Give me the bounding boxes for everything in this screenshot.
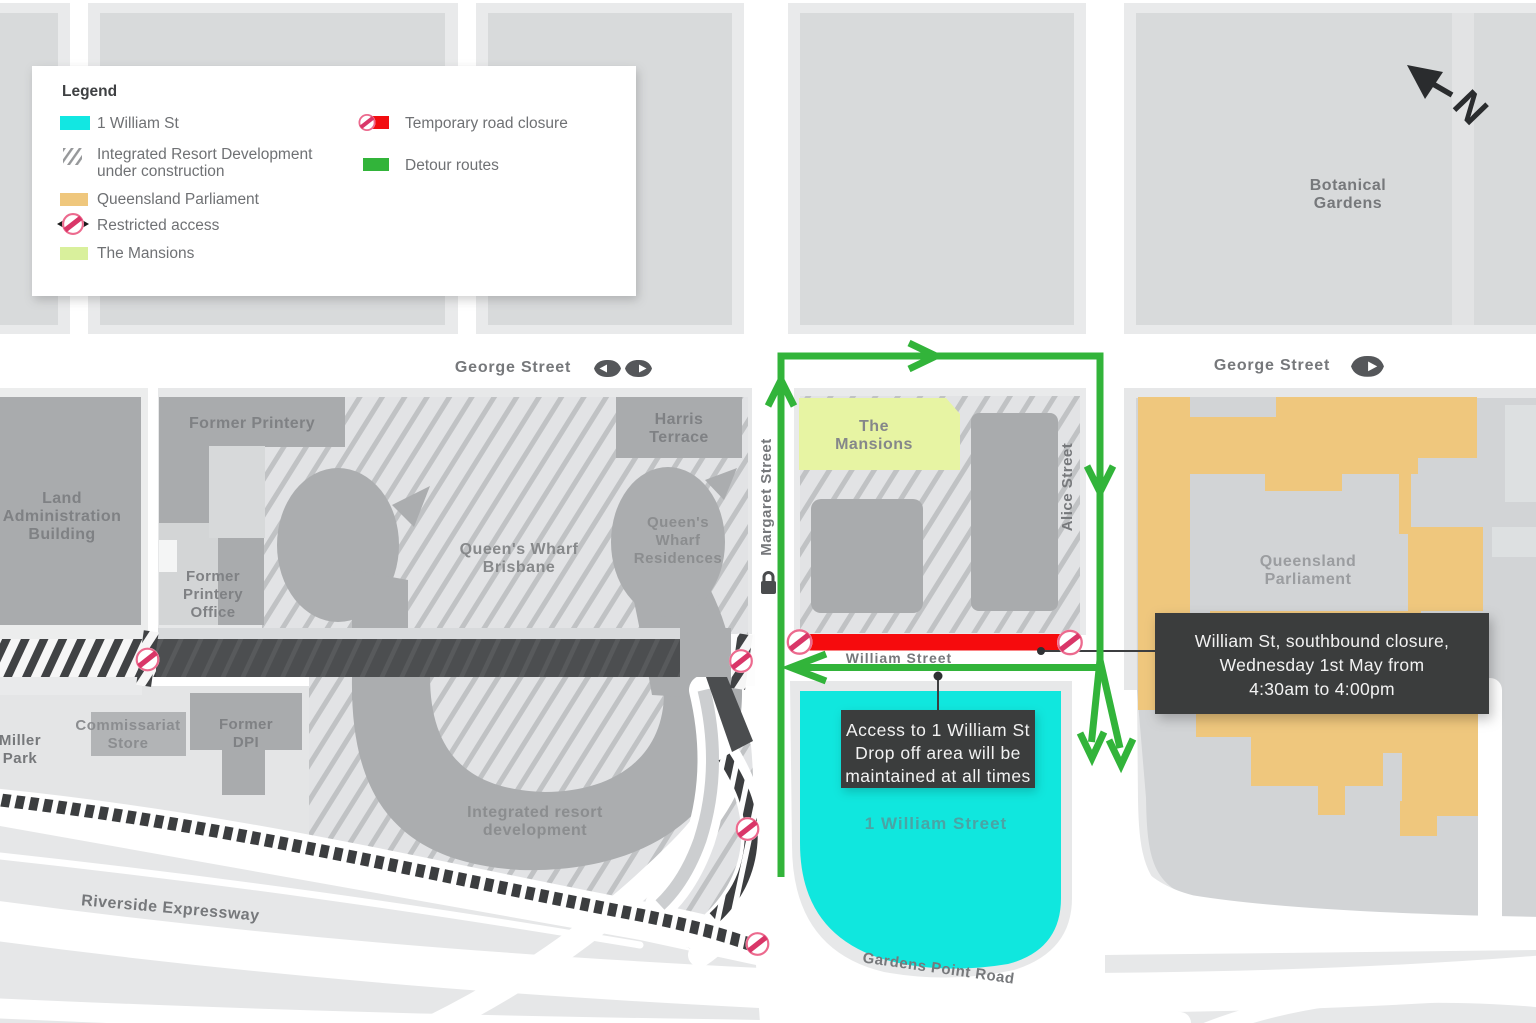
svg-text:Office: Office	[191, 604, 236, 621]
svg-text:1 William St: 1 William St	[97, 115, 180, 132]
svg-text:maintained at all times: maintained at all times	[845, 766, 1031, 786]
svg-text:Mansions: Mansions	[835, 436, 913, 453]
svg-text:Drop off area will be: Drop off area will be	[855, 743, 1021, 763]
svg-text:under construction: under construction	[97, 163, 225, 180]
svg-text:George Street: George Street	[455, 359, 571, 376]
svg-text:Integrated Resort Development: Integrated Resort Development	[97, 146, 313, 163]
svg-text:Queensland: Queensland	[1260, 553, 1357, 570]
svg-text:The Mansions: The Mansions	[97, 245, 195, 262]
svg-text:Commissariat: Commissariat	[75, 717, 180, 734]
svg-text:Legend: Legend	[62, 83, 117, 100]
svg-text:Harris: Harris	[655, 411, 704, 428]
svg-text:George Street: George Street	[1214, 357, 1330, 374]
svg-text:Former: Former	[186, 568, 240, 585]
svg-text:Terrace: Terrace	[649, 429, 708, 446]
svg-text:Detour routes: Detour routes	[405, 157, 499, 174]
svg-text:Botanical: Botanical	[1310, 177, 1387, 194]
svg-text:Miller: Miller	[0, 732, 41, 749]
svg-text:Administration: Administration	[3, 508, 122, 525]
svg-text:Wednesday 1st May from: Wednesday 1st May from	[1220, 655, 1425, 675]
svg-text:Integrated resort: Integrated resort	[467, 804, 603, 821]
svg-text:development: development	[483, 822, 587, 839]
svg-text:1 William Street: 1 William Street	[865, 814, 1007, 833]
svg-text:Park: Park	[3, 750, 38, 767]
svg-text:Brisbane: Brisbane	[483, 559, 555, 576]
svg-text:Queensland Parliament: Queensland Parliament	[97, 191, 260, 208]
svg-text:William St, southbound closure: William St, southbound closure,	[1195, 631, 1449, 651]
svg-text:DPI: DPI	[233, 734, 259, 751]
svg-text:Wharf: Wharf	[656, 532, 702, 549]
svg-text:William Street: William Street	[846, 650, 952, 666]
svg-text:Margaret Street: Margaret Street	[758, 438, 775, 556]
svg-text:Gardens: Gardens	[1314, 195, 1382, 212]
svg-text:Former Printery: Former Printery	[189, 415, 315, 432]
svg-text:Queen's: Queen's	[647, 514, 709, 531]
svg-text:Store: Store	[108, 735, 149, 752]
svg-text:Parliament: Parliament	[1265, 571, 1352, 588]
svg-text:4:30am to 4:00pm: 4:30am to 4:00pm	[1249, 679, 1395, 699]
svg-text:The: The	[859, 418, 889, 435]
svg-text:Residences: Residences	[634, 550, 722, 567]
svg-text:Alice Street: Alice Street	[1059, 443, 1076, 532]
svg-text:Access to 1 William St: Access to 1 William St	[846, 720, 1030, 740]
svg-text:Printery: Printery	[183, 586, 243, 603]
svg-text:Queen's Wharf: Queen's Wharf	[460, 541, 579, 558]
svg-text:Land: Land	[42, 490, 82, 507]
svg-text:Building: Building	[28, 526, 95, 543]
svg-text:Restricted access: Restricted access	[97, 217, 220, 234]
svg-text:Former: Former	[219, 716, 273, 733]
svg-text:Temporary road closure: Temporary road closure	[405, 115, 568, 132]
